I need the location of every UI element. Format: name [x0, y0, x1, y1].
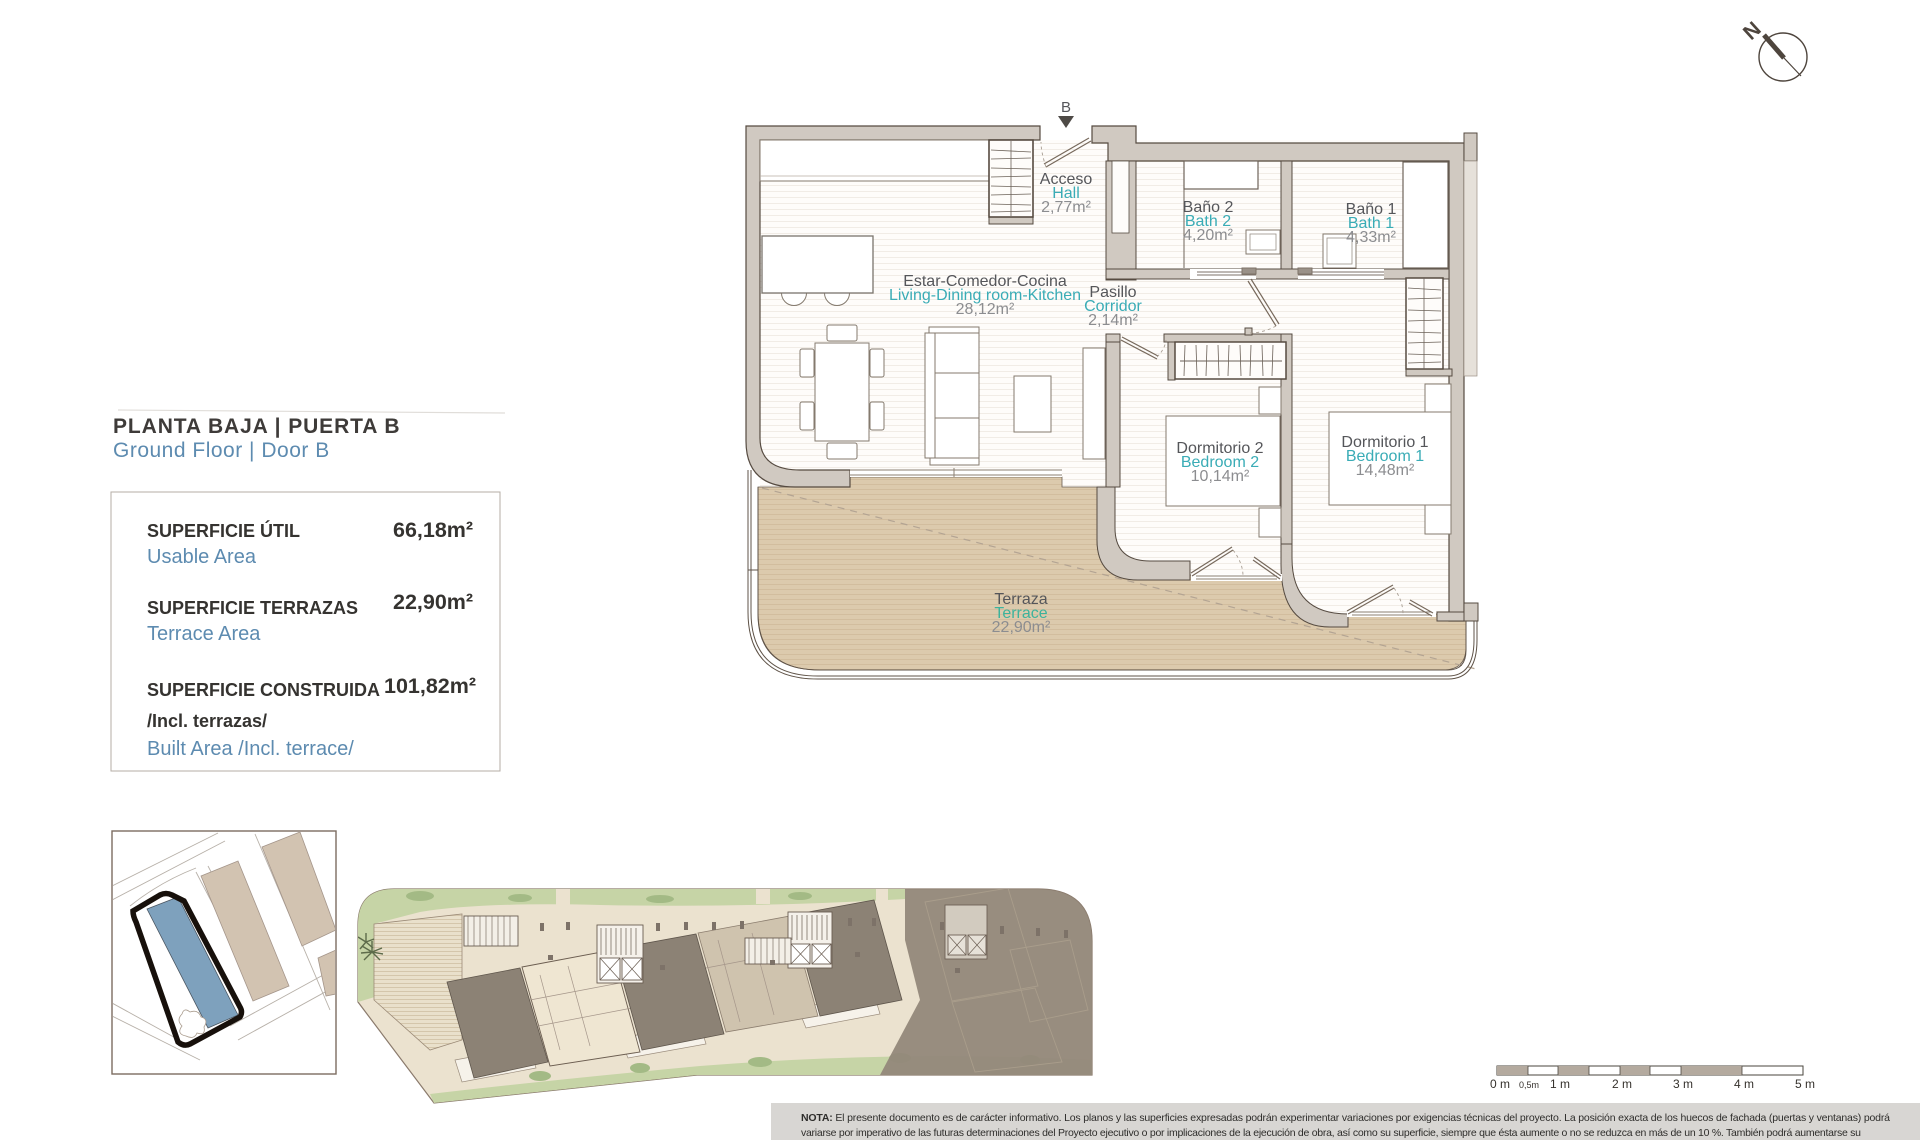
- svg-text:4,33m²: 4,33m²: [1346, 229, 1396, 246]
- svg-text:variarse por imperativo de las: variarse por imperativo de las futuras d…: [801, 1127, 1861, 1139]
- svg-text:Built Area /Incl. terrace/: Built Area /Incl. terrace/: [147, 738, 354, 760]
- svg-text:Ground Floor | Door B: Ground Floor | Door B: [113, 439, 330, 462]
- svg-text:Usable Area: Usable Area: [147, 546, 257, 568]
- svg-text:SUPERFICIE CONSTRUIDA: SUPERFICIE CONSTRUIDA: [147, 680, 380, 700]
- svg-text:SUPERFICIE TERRAZAS: SUPERFICIE TERRAZAS: [147, 598, 358, 618]
- svg-text:2,14m²: 2,14m²: [1088, 312, 1138, 329]
- svg-text:5 m: 5 m: [1795, 1077, 1815, 1091]
- svg-text:/Incl. terrazas/: /Incl. terrazas/: [147, 711, 267, 731]
- svg-text:SUPERFICIE ÚTIL: SUPERFICIE ÚTIL: [147, 520, 300, 541]
- svg-text:22,90m²: 22,90m²: [393, 590, 473, 614]
- svg-text:66,18m²: 66,18m²: [393, 518, 473, 542]
- svg-text:2 m: 2 m: [1612, 1077, 1632, 1091]
- svg-text:PLANTA BAJA | PUERTA B: PLANTA BAJA | PUERTA B: [113, 415, 400, 438]
- svg-text:10,14m²: 10,14m²: [1191, 468, 1250, 485]
- svg-text:Terrace Area: Terrace Area: [147, 623, 261, 645]
- svg-text:3 m: 3 m: [1673, 1077, 1693, 1091]
- svg-text:4,20m²: 4,20m²: [1183, 227, 1233, 244]
- svg-text:28,12m²: 28,12m²: [956, 301, 1015, 318]
- svg-text:101,82m²: 101,82m²: [384, 674, 476, 698]
- svg-text:N: N: [1739, 17, 1766, 44]
- svg-text:4 m: 4 m: [1734, 1077, 1754, 1091]
- svg-text:1 m: 1 m: [1550, 1077, 1570, 1091]
- svg-text:2,77m²: 2,77m²: [1041, 199, 1091, 216]
- svg-text:NOTA: El presente documento e: NOTA: El presente documento es de caráct…: [801, 1112, 1890, 1124]
- svg-text:0 m: 0 m: [1490, 1077, 1510, 1091]
- svg-text:0,5m: 0,5m: [1519, 1080, 1539, 1090]
- svg-text:14,48m²: 14,48m²: [1356, 462, 1415, 479]
- svg-text:22,90m²: 22,90m²: [992, 619, 1051, 636]
- svg-text:B: B: [1061, 99, 1071, 116]
